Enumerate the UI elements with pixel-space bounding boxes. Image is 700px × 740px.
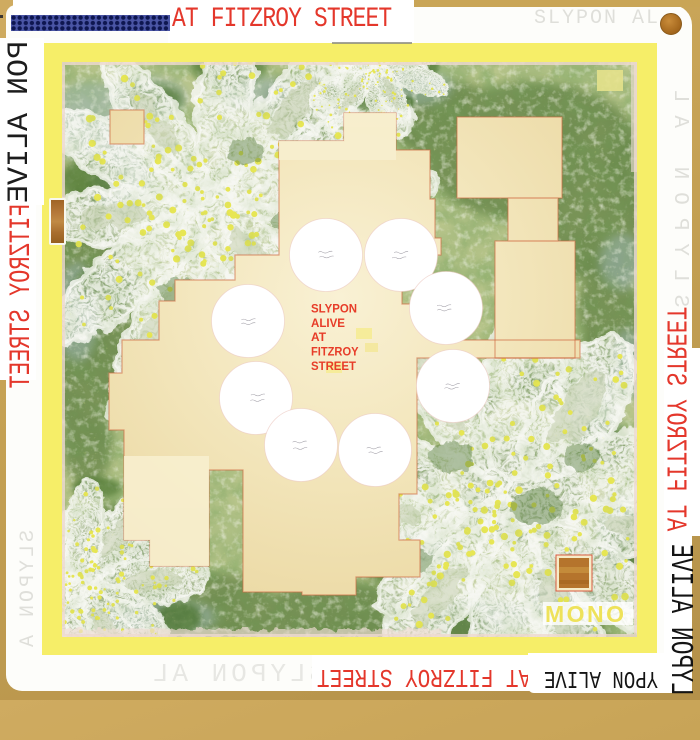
svg-text:MONO: MONO xyxy=(545,601,627,627)
